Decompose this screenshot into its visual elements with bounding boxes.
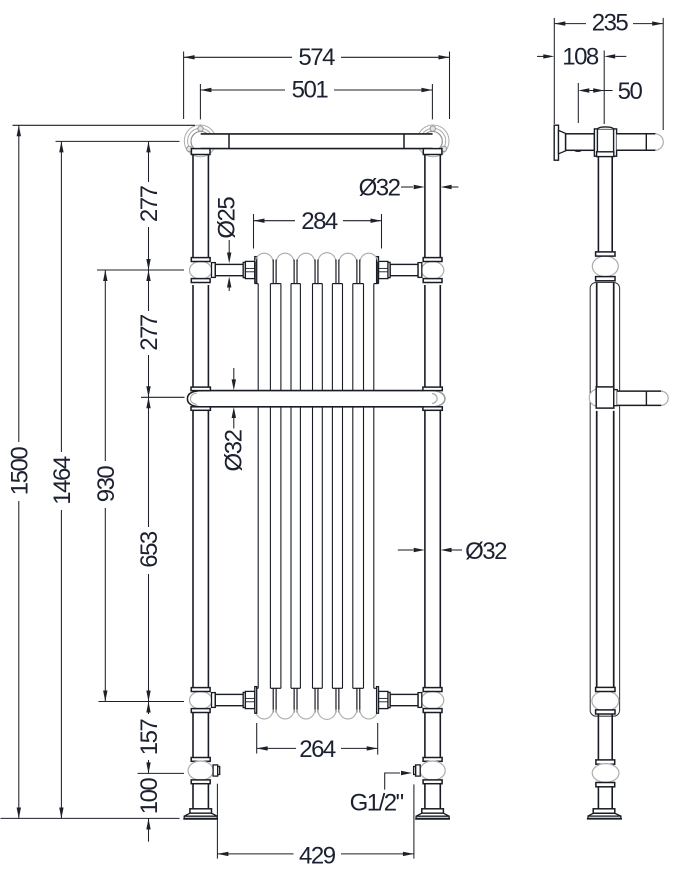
svg-text:1464: 1464 — [49, 456, 76, 505]
svg-text:1500: 1500 — [6, 447, 33, 496]
svg-text:Ø25: Ø25 — [213, 197, 240, 239]
svg-text:100: 100 — [136, 778, 163, 815]
svg-text:277: 277 — [136, 314, 163, 351]
svg-text:G1/2": G1/2" — [350, 790, 404, 817]
svg-text:501: 501 — [292, 77, 329, 104]
svg-text:277: 277 — [136, 185, 163, 222]
svg-text:574: 574 — [298, 44, 335, 71]
svg-text:Ø32: Ø32 — [465, 538, 507, 565]
svg-text:429: 429 — [299, 842, 336, 869]
svg-text:Ø32: Ø32 — [221, 429, 248, 471]
svg-text:284: 284 — [301, 208, 338, 235]
svg-text:930: 930 — [93, 466, 120, 503]
svg-text:264: 264 — [299, 736, 336, 763]
svg-text:157: 157 — [136, 719, 163, 756]
svg-text:Ø32: Ø32 — [359, 175, 401, 202]
svg-text:235: 235 — [592, 10, 629, 37]
svg-text:108: 108 — [562, 43, 599, 70]
svg-text:653: 653 — [136, 531, 163, 568]
svg-text:50: 50 — [618, 78, 643, 105]
